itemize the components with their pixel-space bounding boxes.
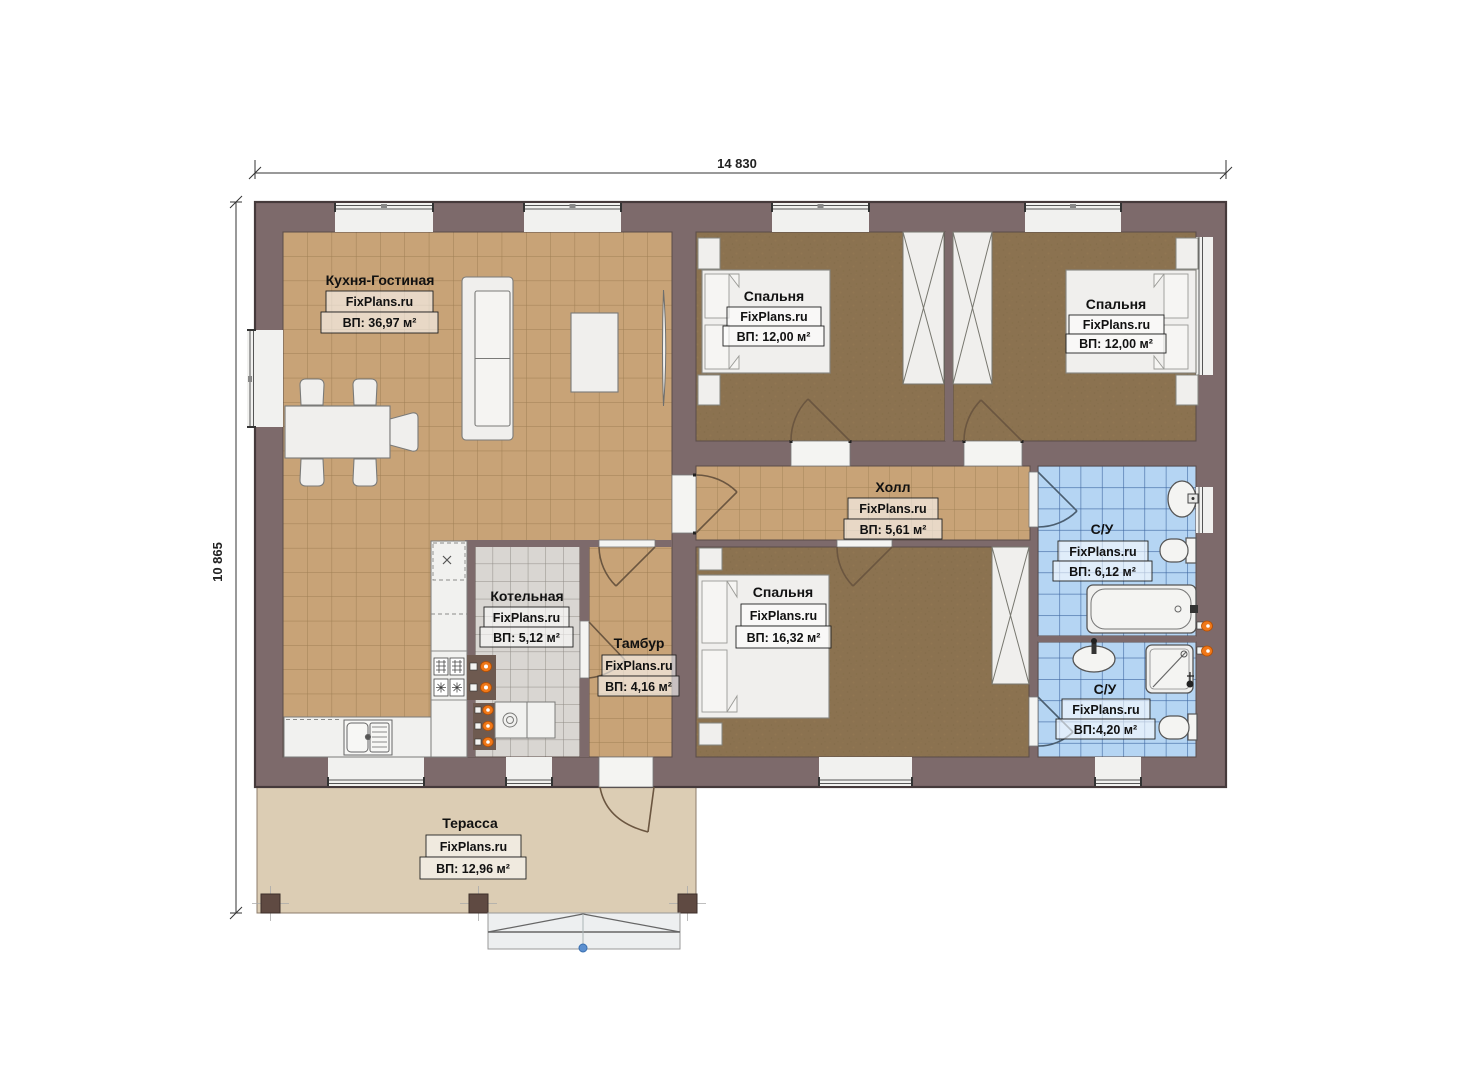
svg-text:FixPlans.ru: FixPlans.ru [1072,703,1139,717]
svg-text:ВП: 4,16 м²: ВП: 4,16 м² [605,680,672,694]
svg-text:ВП:4,20 м²: ВП:4,20 м² [1074,723,1137,737]
svg-text:FixPlans.ru: FixPlans.ru [440,840,507,854]
svg-text:FixPlans.ru: FixPlans.ru [493,611,560,625]
svg-text:FixPlans.ru: FixPlans.ru [1083,318,1150,332]
svg-text:ВП: 12,96 м²: ВП: 12,96 м² [436,862,510,876]
svg-text:Спальня: Спальня [744,288,804,304]
svg-text:Терасса: Терасса [442,815,498,831]
svg-text:С/У: С/У [1094,681,1117,697]
svg-text:Кухня-Гостиная: Кухня-Гостиная [326,272,435,288]
svg-text:10 865: 10 865 [210,542,225,582]
svg-text:14 830: 14 830 [717,156,757,171]
svg-text:ВП: 12,00 м²: ВП: 12,00 м² [1079,337,1153,351]
svg-text:ВП: 5,12 м²: ВП: 5,12 м² [493,631,560,645]
svg-text:FixPlans.ru: FixPlans.ru [740,310,807,324]
svg-text:Спальня: Спальня [753,584,813,600]
svg-text:ВП: 16,32 м²: ВП: 16,32 м² [747,631,821,645]
svg-text:ВП: 5,61 м²: ВП: 5,61 м² [860,523,927,537]
svg-text:ВП: 12,00 м²: ВП: 12,00 м² [737,330,811,344]
svg-text:С/У: С/У [1091,521,1114,537]
svg-text:FixPlans.ru: FixPlans.ru [605,659,672,673]
svg-text:Спальня: Спальня [1086,296,1146,312]
svg-text:FixPlans.ru: FixPlans.ru [346,295,413,309]
svg-text:FixPlans.ru: FixPlans.ru [1069,545,1136,559]
svg-text:FixPlans.ru: FixPlans.ru [859,502,926,516]
svg-text:ВП: 36,97 м²: ВП: 36,97 м² [343,316,417,330]
svg-text:FixPlans.ru: FixPlans.ru [750,609,817,623]
svg-text:Холл: Холл [875,479,910,495]
svg-text:ВП: 6,12 м²: ВП: 6,12 м² [1069,565,1136,579]
svg-text:Тамбур: Тамбур [614,635,665,651]
svg-text:Котельная: Котельная [490,588,563,604]
